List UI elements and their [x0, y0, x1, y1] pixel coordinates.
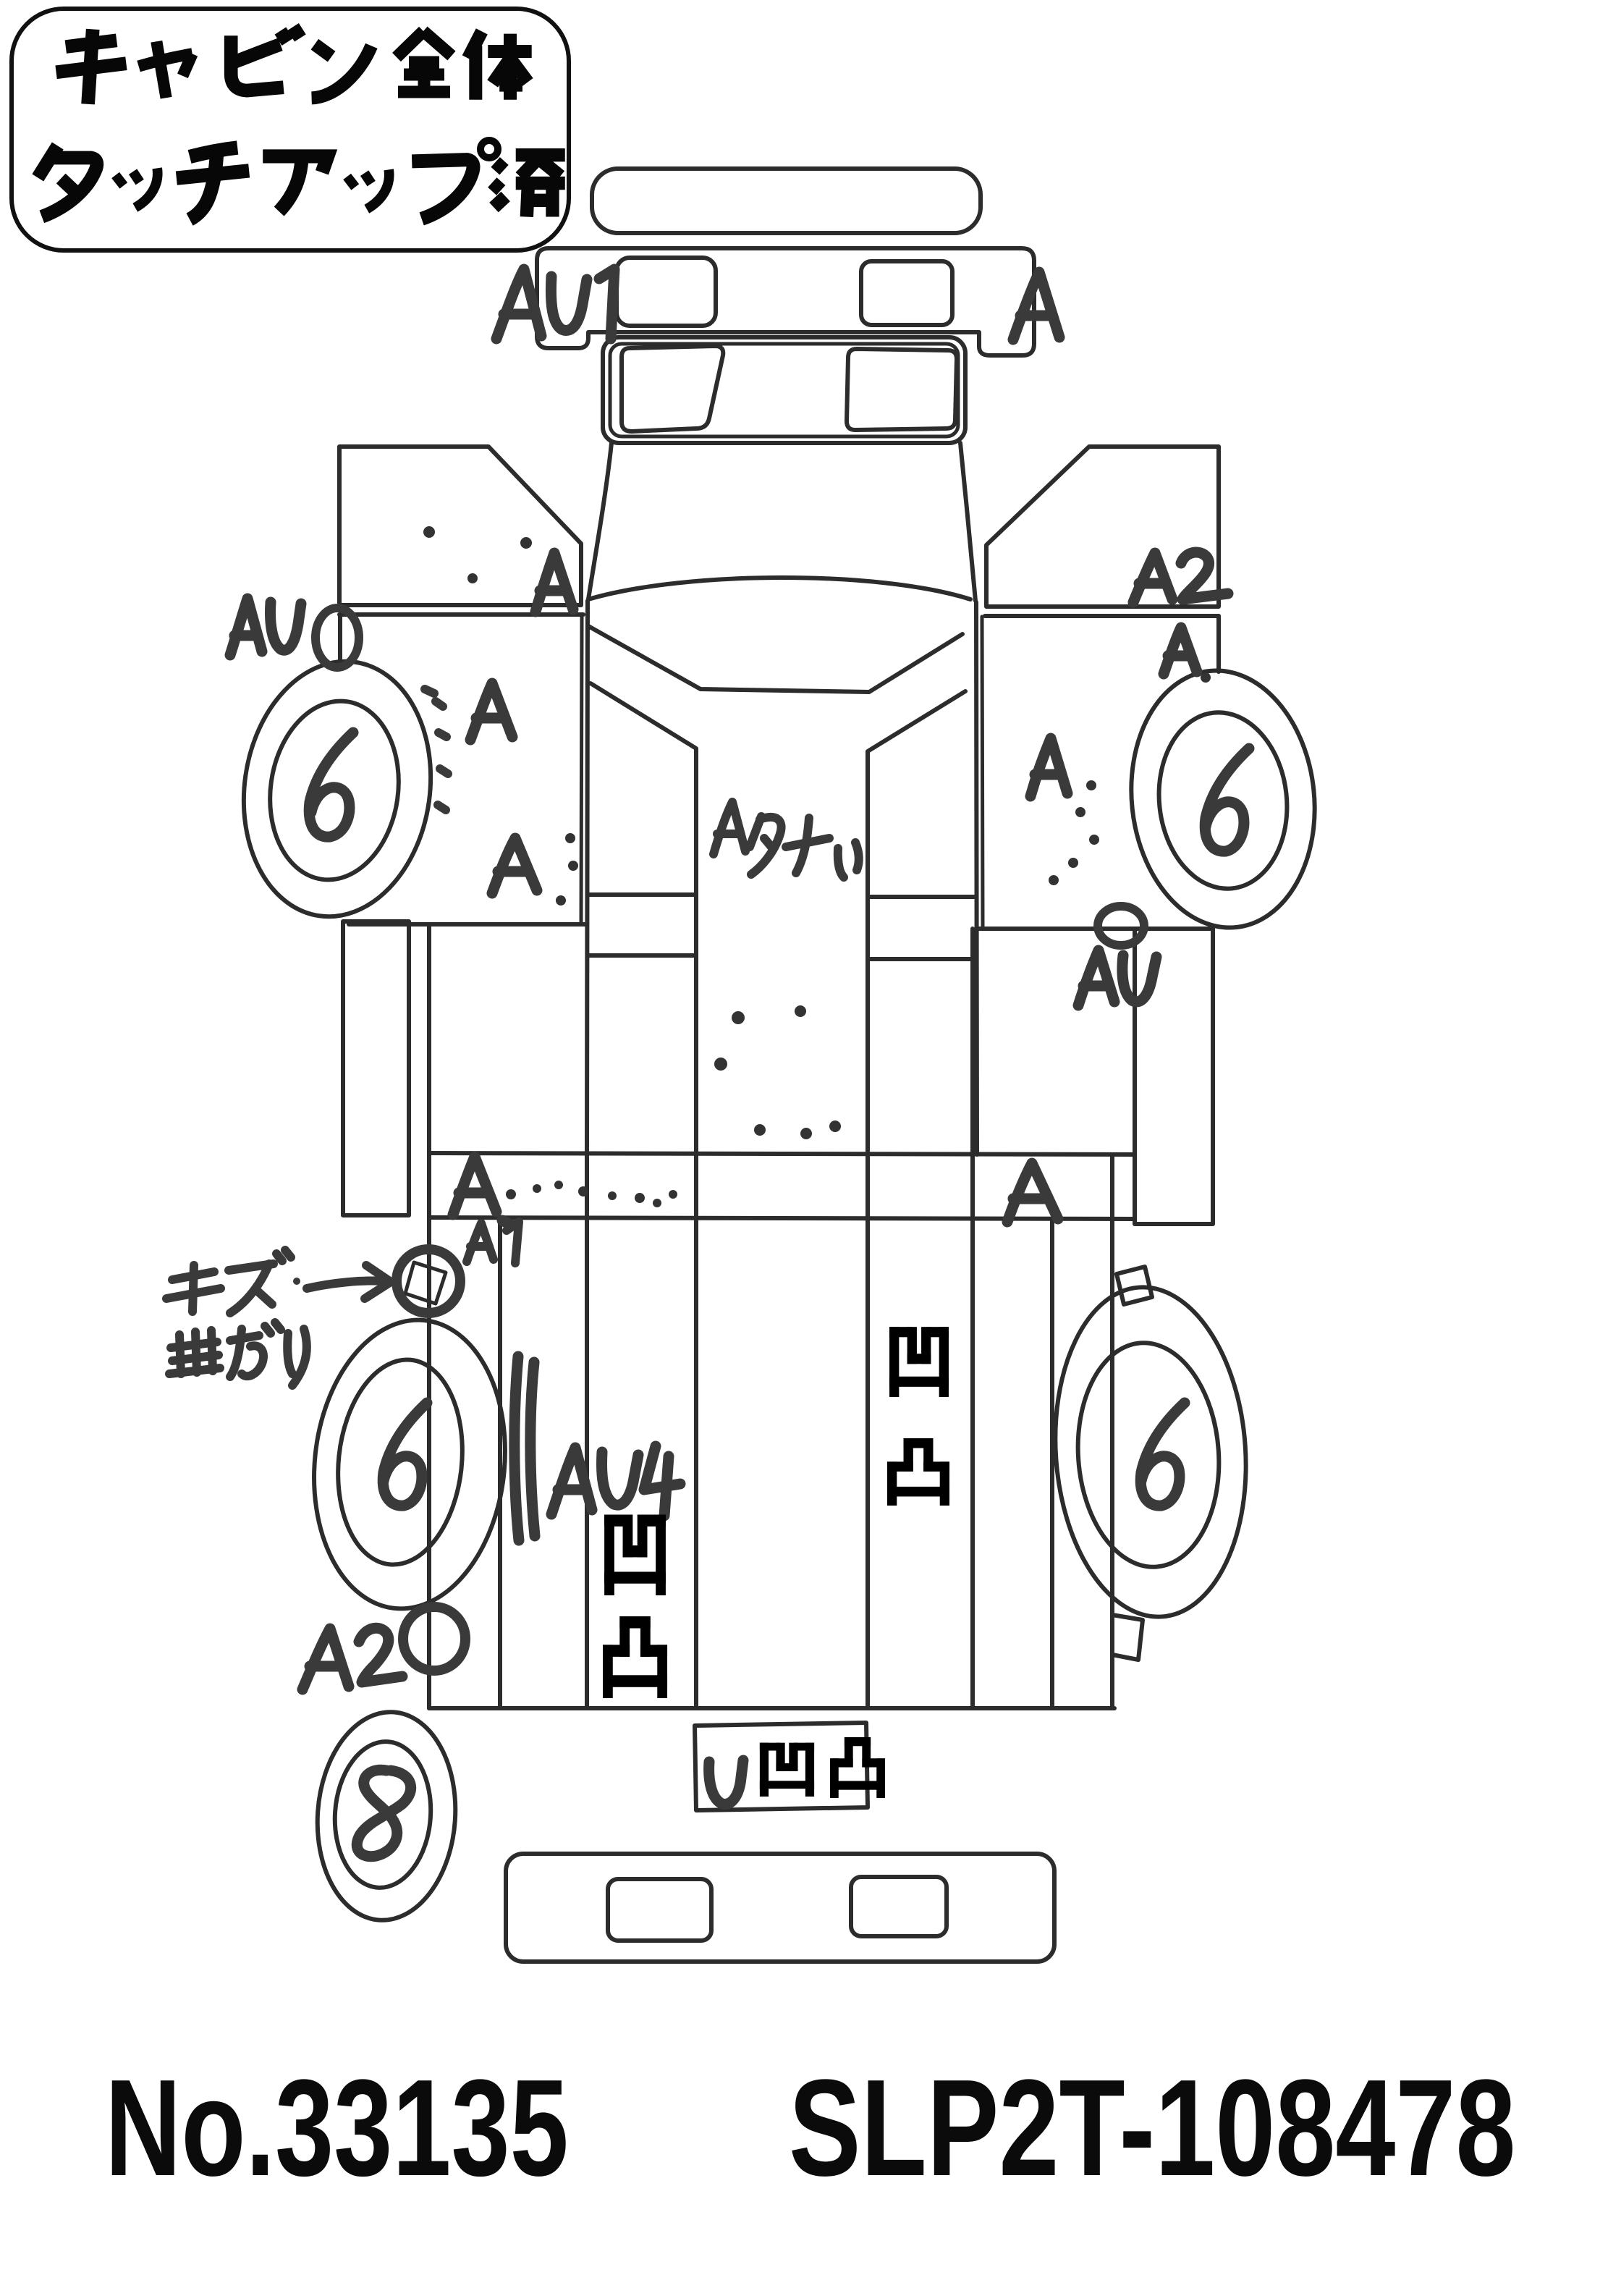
svg-text:SLP2T-108478: SLP2T-108478: [789, 2051, 1515, 2205]
svg-text:No.33135: No.33135: [105, 2051, 569, 2204]
